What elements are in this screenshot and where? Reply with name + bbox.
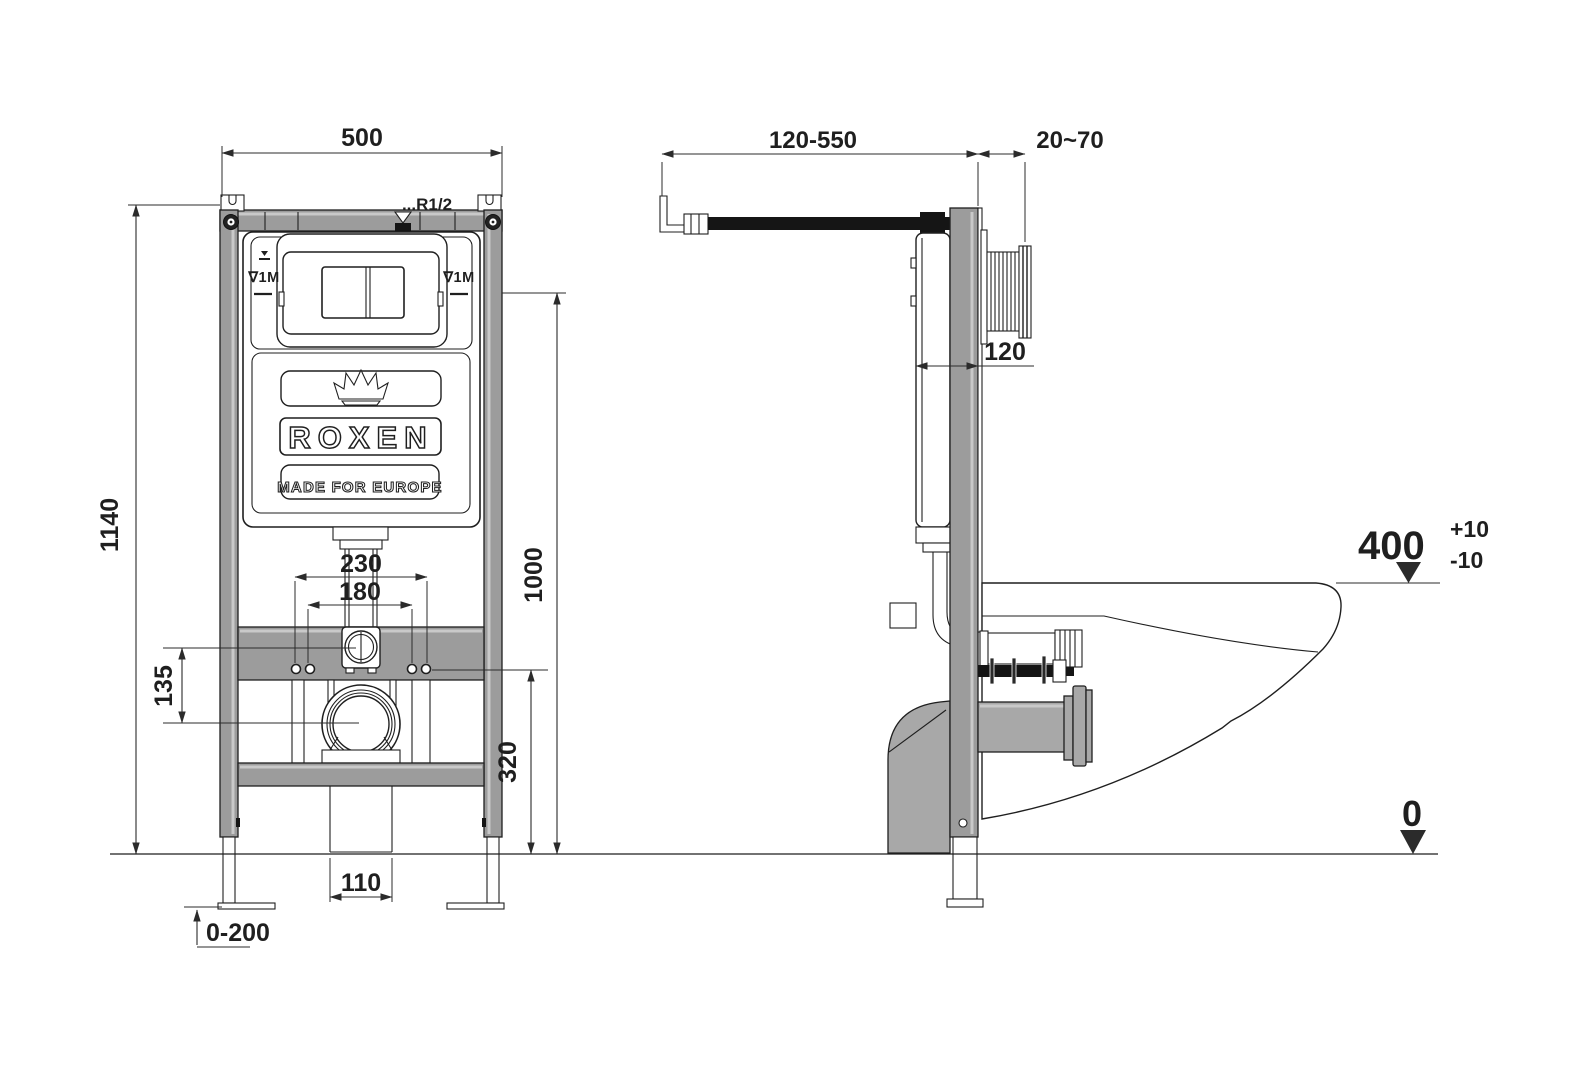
drain-saddle xyxy=(322,750,400,763)
right-corner-bolt xyxy=(486,215,501,230)
dim-holes-height-label: 320 xyxy=(494,741,522,783)
dim-inner-holes-label: 180 xyxy=(339,578,381,606)
side-view: 120-550 20~70 120 400 +10 -10 0 xyxy=(660,127,1489,907)
rear-support-bracket xyxy=(890,603,916,628)
left-foot-plate xyxy=(218,903,275,909)
dim-offset-label: 135 xyxy=(150,665,178,707)
dim-plate-height-label: 1000 xyxy=(520,547,548,603)
dim-bowl-tol-plus-label: +10 xyxy=(1450,516,1489,542)
water-supply-label: ...R1/2 xyxy=(402,195,452,214)
level-marker-400: 400 +10 -10 xyxy=(1336,516,1489,583)
dim-frame-depth-label: 120 xyxy=(984,338,1026,366)
wall-sleeve-bellows xyxy=(981,230,1031,344)
side-column-hole xyxy=(959,819,967,827)
cistern-side-neck xyxy=(916,527,950,543)
left-column xyxy=(220,210,238,837)
left-corner-bolt xyxy=(224,215,239,230)
dim-height-1140: 1140 xyxy=(96,205,220,854)
left-leg-tube[interactable] xyxy=(223,837,235,903)
dim-outer-holes-label: 230 xyxy=(340,550,382,578)
cistern-neck-lower xyxy=(340,540,382,549)
toilet-bowl xyxy=(982,583,1341,819)
right-leg-tube[interactable] xyxy=(487,837,499,903)
right-strut xyxy=(412,680,430,763)
dim-floor-level-label: 0 xyxy=(1402,793,1422,834)
side-foot-plate xyxy=(947,899,983,907)
dim-bowl-height-label: 400 xyxy=(1358,524,1425,568)
dim-width-label: 500 xyxy=(341,124,383,152)
dim-width-500: 500 xyxy=(222,124,502,197)
dim-leg-adjust-0-200: 0-200 xyxy=(184,907,270,947)
drain-outlet xyxy=(322,685,400,763)
technical-drawing-canvas: ...R1/2 ∇1M ∇1M xyxy=(0,0,1571,1080)
left-column-tab xyxy=(236,818,240,827)
installation-frame-drawing: ...R1/2 ∇1M ∇1M xyxy=(0,0,1571,1080)
dim-supply-range-label: 120-550 xyxy=(769,127,857,154)
level-triangle-0-icon xyxy=(1400,830,1426,854)
inlet-fitting xyxy=(342,627,380,673)
plate-clip-right xyxy=(438,292,443,306)
dim-leg-adjust-label: 0-200 xyxy=(206,919,270,947)
drain-elbow xyxy=(888,701,950,853)
cistern-neck xyxy=(333,527,388,540)
level-mark-left-label: ∇1M xyxy=(247,270,279,286)
left-strut xyxy=(292,680,304,763)
right-hanger-bracket xyxy=(478,195,501,211)
crown-logo-base xyxy=(342,401,380,405)
dim-drain-110: 110 xyxy=(330,858,392,902)
level-marker-0: 0 xyxy=(1400,793,1426,854)
supply-pipe-valve xyxy=(920,212,945,235)
left-hanger-bracket xyxy=(221,195,244,211)
level-mark-right-label: ∇1M xyxy=(442,270,474,286)
dim-wall-finish-label: 20~70 xyxy=(1036,127,1103,154)
flush-buttons[interactable] xyxy=(322,267,404,318)
dim-bowl-tol-minus-label: -10 xyxy=(1450,547,1483,573)
dim-wall-20-70: 20~70 xyxy=(978,127,1104,242)
plate-clip-left xyxy=(279,292,284,306)
front-view: ...R1/2 ∇1M ∇1M xyxy=(96,124,566,947)
dim-drain-opening-label: 110 xyxy=(341,869,381,897)
dim-supply-120-550: 120-550 xyxy=(662,127,978,206)
dim-height-label: 1140 xyxy=(96,498,124,552)
brand-label: ROXEN xyxy=(288,420,433,455)
side-leg-tube[interactable] xyxy=(953,837,977,899)
supply-fitting xyxy=(684,214,708,234)
right-foot-plate xyxy=(447,903,504,909)
right-column-tab xyxy=(482,818,486,827)
flush-connector xyxy=(980,630,1082,667)
side-column xyxy=(950,208,978,837)
brand-sub-label: MADE FOR EUROPE xyxy=(277,479,443,496)
drain-opening-lines xyxy=(330,786,392,852)
